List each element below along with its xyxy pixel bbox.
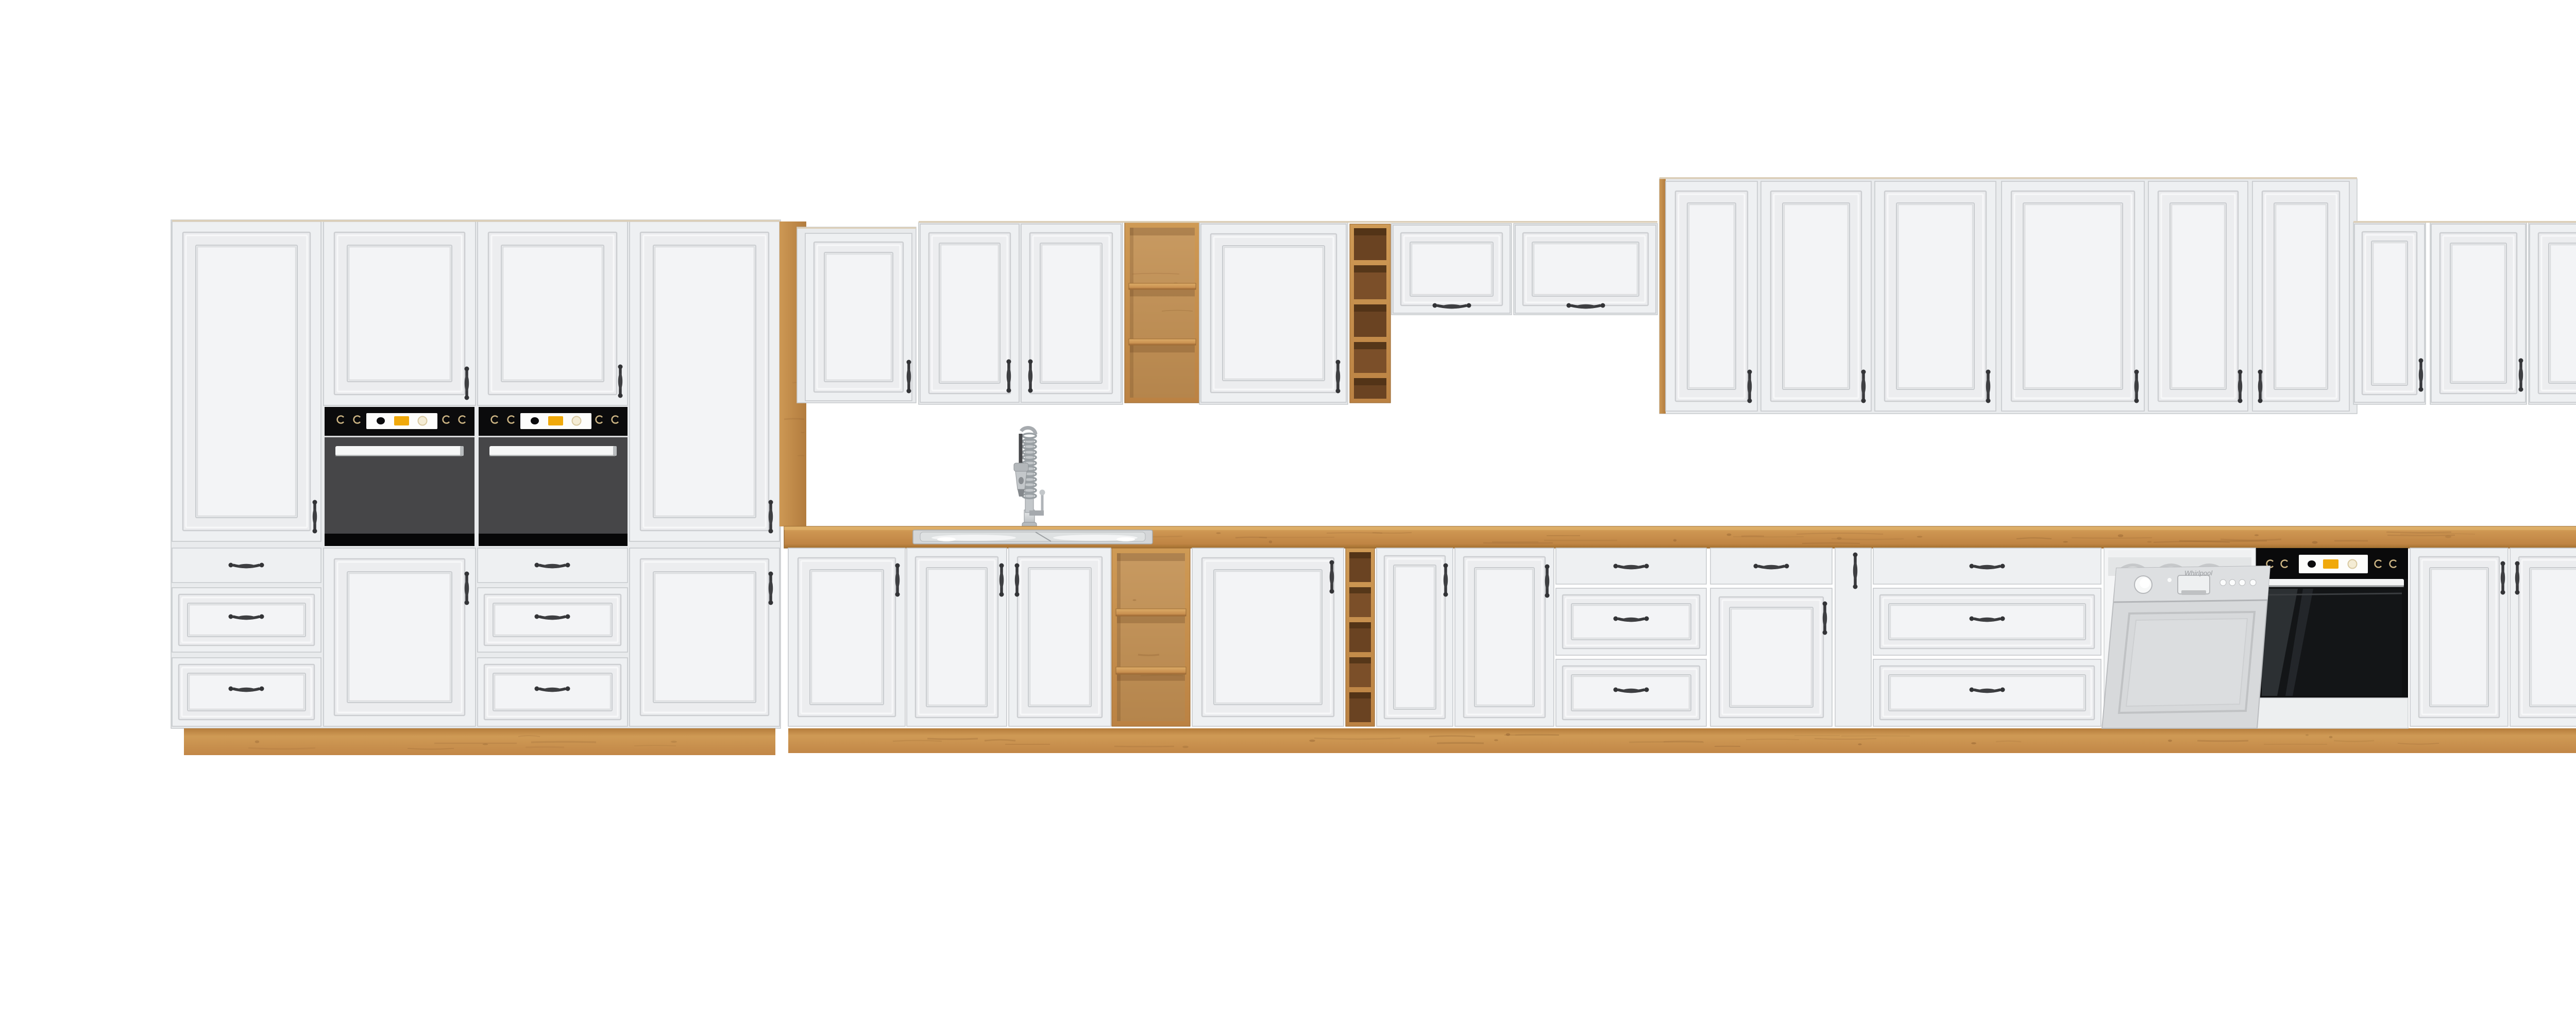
svg-text:Whirlpool: Whirlpool (2184, 569, 2213, 577)
